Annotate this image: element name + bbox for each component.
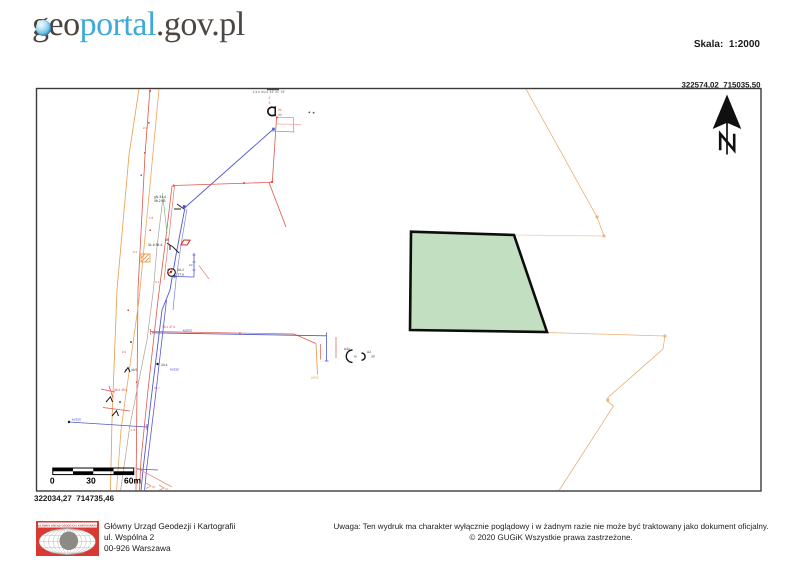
svg-text:38: 38 (371, 355, 375, 359)
svg-text:38.9 38.4: 38.9 38.4 (114, 388, 128, 392)
svg-text:0: 0 (50, 475, 55, 485)
svg-text:3.1: 3.1 (155, 280, 160, 284)
svg-text:60: 60 (152, 485, 156, 489)
svg-text:31: 31 (278, 108, 282, 112)
svg-text:38.4: 38.4 (161, 363, 168, 367)
svg-text:A2: A2 (367, 350, 371, 354)
svg-text:2.2: 2.2 (122, 350, 127, 354)
svg-text:38.2: 38.2 (178, 268, 185, 272)
svg-text:37.6: 37.6 (178, 273, 185, 277)
svg-text:kd150: kd150 (72, 418, 81, 422)
svg-text:kd150: kd150 (170, 368, 179, 372)
svg-text:60m: 60m (124, 475, 141, 485)
svg-text:43.5: 43.5 (131, 368, 137, 372)
svg-text:38.7: 38.7 (154, 386, 160, 390)
svg-text:gA32: gA32 (311, 376, 319, 380)
svg-text:1.6: 1.6 (131, 428, 136, 432)
svg-text:322034,27 714735,46: 322034,27 714735,46 (34, 494, 115, 503)
svg-text:m: m (354, 355, 357, 359)
svg-text:30: 30 (86, 475, 96, 485)
svg-text:30: 30 (278, 113, 282, 117)
svg-text:2: 2 (269, 96, 271, 100)
svg-text:1/14 31/2 3F 2F 3F: 1/14 31/2 3F 2F 3F (253, 90, 286, 94)
svg-text:2.1: 2.1 (143, 126, 148, 130)
svg-text:3: 3 (269, 101, 271, 105)
svg-text:38: 38 (165, 238, 169, 242)
svg-text:kd: kd (189, 263, 193, 267)
svg-text:A32: A32 (344, 347, 350, 351)
svg-text:GŁÓWNY URZĄD GEODEZJI I KARTOG: GŁÓWNY URZĄD GEODEZJI I KARTOGRAFII (38, 524, 97, 528)
svg-text:38.1 37.9: 38.1 37.9 (162, 325, 176, 329)
svg-text:1.8: 1.8 (149, 216, 154, 220)
svg-text:kd200: kd200 (183, 329, 192, 333)
svg-text:2.4: 2.4 (133, 250, 138, 254)
svg-text:31.9 38.4: 31.9 38.4 (148, 243, 162, 247)
svg-text:38.2 kS: 38.2 kS (154, 199, 166, 203)
